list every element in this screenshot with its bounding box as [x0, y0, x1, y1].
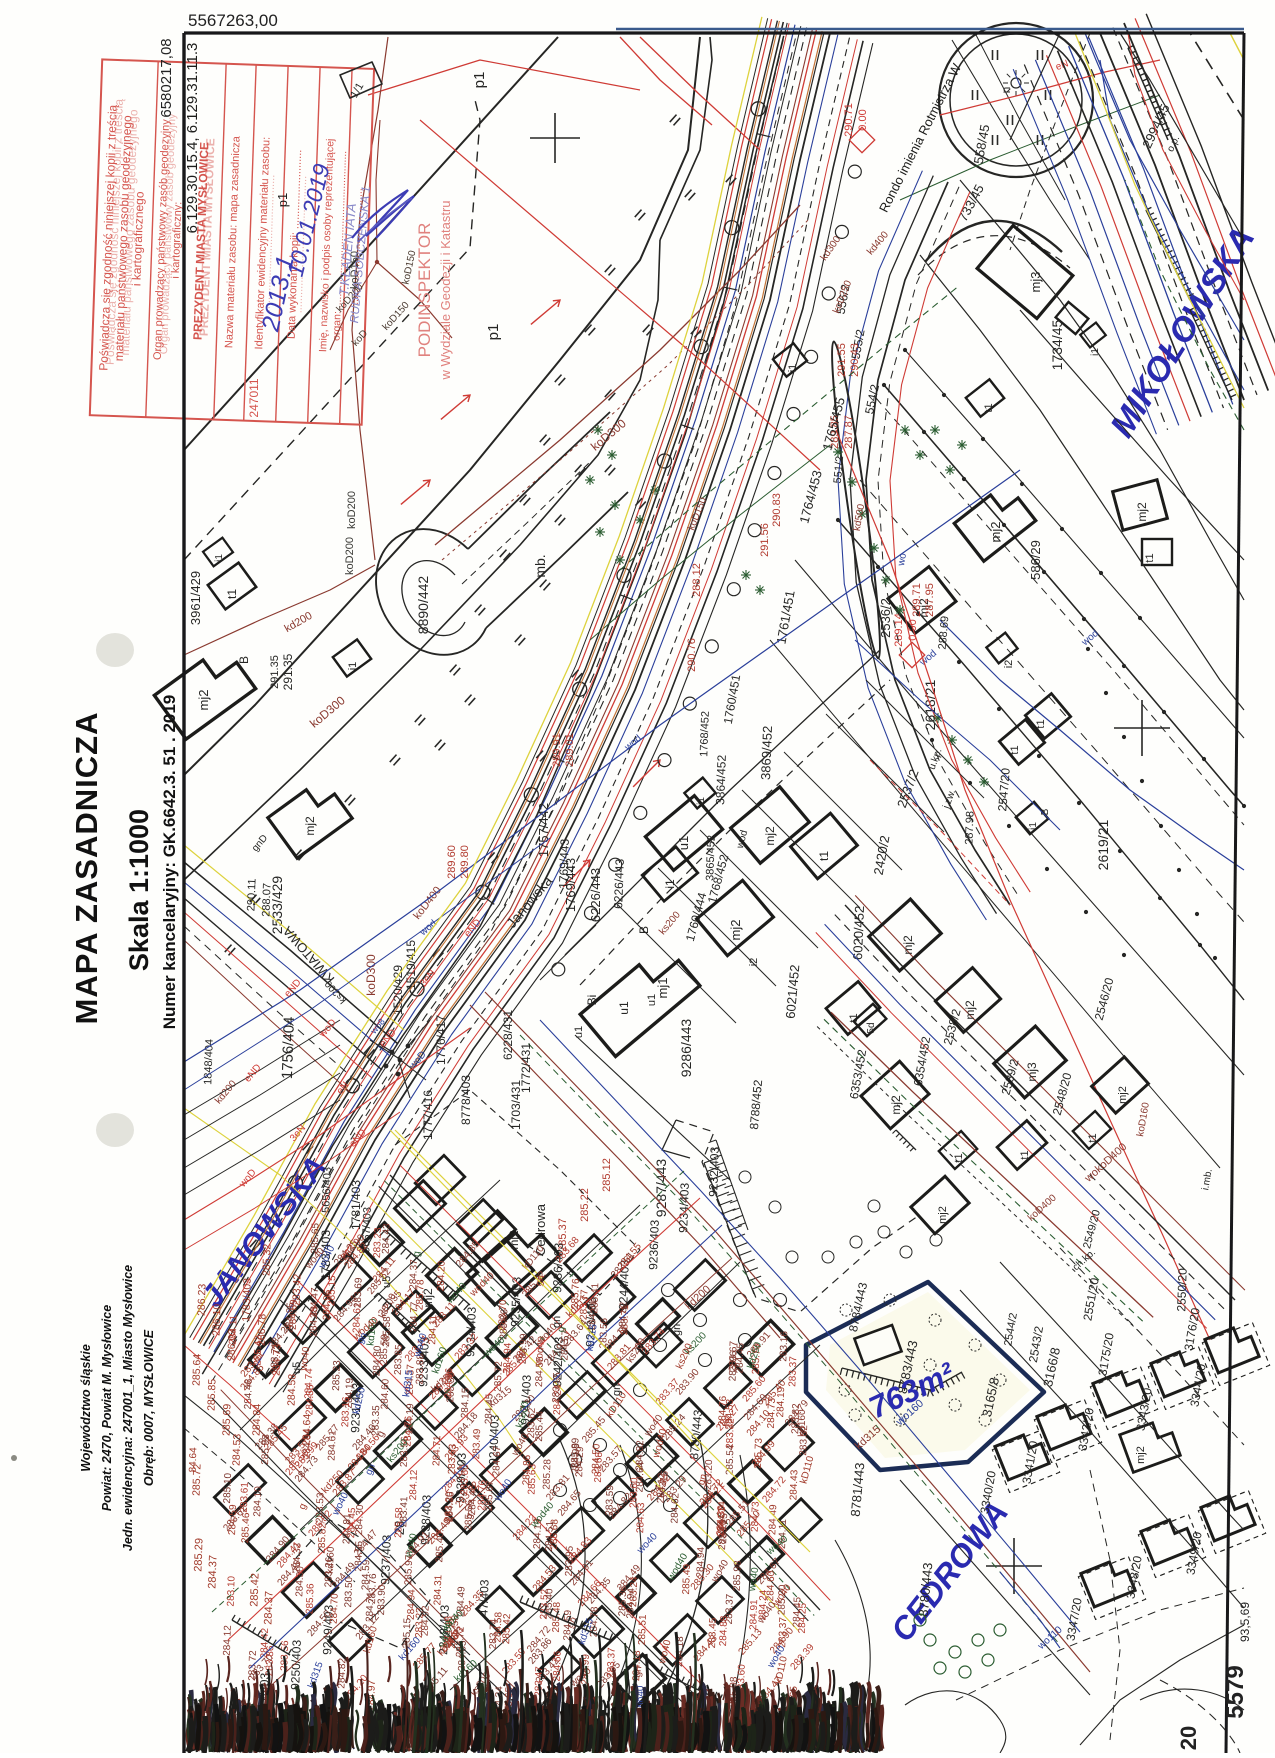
svg-text:284.43: 284.43 — [381, 1223, 393, 1254]
svg-text:i1: i1 — [696, 797, 707, 805]
svg-text:0.00: 0.00 — [857, 109, 869, 130]
svg-text:284.43: 284.43 — [308, 1305, 320, 1336]
svg-text:283.74: 283.74 — [488, 1618, 500, 1649]
svg-text:284.43: 284.43 — [788, 1469, 800, 1500]
svg-text:t1: t1 — [953, 1153, 965, 1162]
svg-text:284.77: 284.77 — [408, 1301, 420, 1332]
svg-text:u5: u5 — [381, 1276, 393, 1289]
svg-text:283.60: 283.60 — [628, 1477, 640, 1508]
svg-text:Numer kancelaryjny: GK.6642.3.: Numer kancelaryjny: GK.6642.3. 51 . 2019 — [160, 695, 179, 1030]
svg-text:1783/403: 1783/403 — [240, 1278, 254, 1322]
svg-text:284.10: 284.10 — [252, 1486, 264, 1517]
svg-text:mj2: mj2 — [1117, 1086, 1129, 1104]
svg-text:285.29: 285.29 — [192, 1538, 205, 1572]
svg-text:285.72: 285.72 — [190, 1463, 203, 1496]
svg-text:9287/443: 9287/443 — [653, 1159, 669, 1218]
svg-text:i1: i1 — [1028, 822, 1039, 830]
svg-text:289.91: 289.91 — [551, 733, 563, 767]
svg-text:mj2: mj2 — [507, 1230, 521, 1250]
svg-text:mj2: mj2 — [988, 522, 1003, 543]
svg-text:mj2: mj2 — [901, 935, 915, 955]
svg-text:284.12: 284.12 — [222, 1625, 234, 1656]
svg-text:1757/442: 1757/442 — [536, 803, 551, 857]
svg-text:284.53: 284.53 — [230, 1433, 243, 1466]
svg-text:287.87: 287.87 — [843, 415, 855, 449]
svg-text:284.70: 284.70 — [329, 1593, 341, 1624]
svg-text:1848/404: 1848/404 — [202, 1039, 216, 1085]
svg-text:285.10: 285.10 — [222, 1472, 234, 1503]
svg-text:t1: t1 — [1087, 1133, 1099, 1142]
svg-text:9286/443: 9286/443 — [678, 1019, 694, 1078]
svg-text:284.12: 284.12 — [408, 1469, 420, 1500]
svg-text:PODINSPEKTOR: PODINSPEKTOR — [415, 223, 434, 358]
svg-text:MAPA ZASADNICZA: MAPA ZASADNICZA — [69, 712, 104, 1025]
svg-text:koD200: koD200 — [344, 537, 356, 575]
svg-text:8890/442: 8890/442 — [415, 576, 431, 635]
svg-text:247011: 247011 — [247, 378, 261, 417]
svg-text:283.25: 283.25 — [718, 1513, 730, 1544]
svg-text:285.64: 285.64 — [190, 1353, 203, 1386]
svg-text:285.15: 285.15 — [326, 1275, 338, 1306]
svg-text:284.25: 284.25 — [797, 1602, 809, 1633]
svg-text:284.37: 284.37 — [408, 1259, 420, 1290]
svg-text:t1: t1 — [1019, 1150, 1031, 1159]
svg-text:284.73: 284.73 — [270, 1343, 283, 1376]
svg-text:283.10: 283.10 — [226, 1575, 238, 1606]
svg-text:285.23: 285.23 — [331, 1360, 343, 1391]
svg-text:290.71: 290.71 — [843, 103, 855, 137]
svg-text:1776/417: 1776/417 — [434, 1015, 448, 1065]
svg-text:283.42: 283.42 — [290, 1273, 303, 1306]
svg-text:t1: t1 — [817, 851, 831, 861]
svg-text:mj2: mj2 — [963, 1000, 977, 1020]
svg-text:285.22: 285.22 — [579, 1188, 591, 1222]
svg-text:koD300: koD300 — [364, 954, 378, 996]
svg-text:290.76: 290.76 — [686, 638, 698, 672]
svg-text:285.32: 285.32 — [260, 1243, 273, 1276]
svg-text:285.28: 285.28 — [541, 1459, 553, 1490]
svg-text:291.35: 291.35 — [281, 653, 295, 690]
svg-text:284.37: 284.37 — [262, 1591, 275, 1625]
svg-text:t1: t1 — [1009, 745, 1021, 754]
svg-text:1769/443: 1769/443 — [563, 858, 578, 912]
svg-text:283.95: 283.95 — [564, 1545, 576, 1576]
svg-text:5d: 5d — [866, 1022, 877, 1033]
svg-text:285.12: 285.12 — [601, 1158, 613, 1192]
svg-text:Skala 1:1000: Skala 1:1000 — [124, 809, 154, 971]
svg-text:3961/429: 3961/429 — [188, 571, 203, 625]
svg-text:284.86: 284.86 — [521, 1454, 533, 1485]
svg-text:284.84: 284.84 — [250, 1403, 263, 1436]
svg-text:6226/443: 6226/443 — [588, 868, 603, 922]
svg-text:285.59: 285.59 — [379, 1334, 391, 1365]
svg-text:286.23: 286.23 — [195, 1283, 208, 1316]
svg-text:284.94: 284.94 — [625, 1588, 637, 1619]
svg-text:284.31: 284.31 — [432, 1574, 444, 1605]
svg-text:u1: u1 — [573, 1026, 585, 1038]
svg-text:mj2: mj2 — [1135, 1446, 1147, 1464]
svg-text:Powiat: 2470, Powiat M. Mysłow: Powiat: 2470, Powiat M. Mysłowice — [100, 1305, 114, 1511]
svg-text:5579: 5579 — [1222, 1665, 1249, 1718]
svg-text:kd160: kd160 — [797, 1409, 808, 1437]
svg-text:6.129.30.15.4, 6.129.31.11.3: 6.129.30.15.4, 6.129.31.11.3 — [184, 43, 201, 234]
svg-text:6228/431: 6228/431 — [501, 1010, 515, 1060]
svg-text:285.51: 285.51 — [637, 1614, 649, 1645]
svg-text:mj2: mj2 — [889, 1095, 903, 1115]
svg-text:t1: t1 — [1144, 553, 1156, 562]
svg-text:p1: p1 — [485, 324, 502, 341]
svg-text:gn: gn — [551, 1316, 563, 1329]
svg-text:290.83: 290.83 — [771, 493, 783, 527]
svg-text:p1: p1 — [275, 193, 290, 207]
svg-text:B: B — [237, 656, 251, 664]
svg-text:285.36: 285.36 — [305, 1583, 317, 1614]
svg-text:6226/443: 6226/443 — [611, 858, 627, 909]
svg-text:286.78: 286.78 — [255, 1313, 268, 1346]
svg-text:B: B — [637, 926, 651, 934]
svg-text:284.64: 284.64 — [300, 1413, 313, 1446]
svg-text:t1: t1 — [1035, 719, 1047, 728]
svg-text:gn: gn — [611, 1384, 623, 1397]
svg-text:586/29: 586/29 — [1028, 540, 1043, 580]
svg-text:551/2: 551/2 — [832, 456, 846, 484]
svg-text:291.56: 291.56 — [759, 523, 771, 557]
svg-text:i1: i1 — [787, 364, 799, 373]
svg-text:mj2: mj2 — [196, 690, 211, 711]
svg-text:285.98: 285.98 — [732, 1560, 744, 1591]
svg-text:mj2: mj2 — [728, 920, 743, 941]
svg-text:Obręb: 0007, MYSŁOWICE: Obręb: 0007, MYSŁOWICE — [142, 1329, 156, 1486]
svg-text:mj3: mj3 — [1025, 1062, 1039, 1082]
svg-text:284.30: 284.30 — [294, 1566, 306, 1597]
svg-text:288.07: 288.07 — [260, 883, 273, 917]
svg-text:290.43: 290.43 — [849, 343, 861, 377]
svg-text:u1: u1 — [617, 1001, 631, 1015]
svg-text:1703/431: 1703/431 — [509, 1080, 523, 1130]
svg-text:284.58: 284.58 — [285, 1373, 298, 1406]
svg-text:u5: u5 — [291, 1362, 303, 1375]
svg-text:289.71: 289.71 — [911, 583, 923, 617]
svg-text:t1: t1 — [983, 403, 995, 412]
svg-text:t1: t1 — [225, 589, 239, 599]
svg-text:1777/416: 1777/416 — [421, 1090, 435, 1140]
svg-text:9237/403: 9237/403 — [378, 1534, 394, 1585]
svg-text:w Wydziale Geodezji i Katastru: w Wydziale Geodezji i Katastru — [438, 200, 453, 380]
svg-text:5567263,00: 5567263,00 — [188, 11, 278, 30]
svg-text:2550/20: 2550/20 — [1174, 1268, 1190, 1312]
svg-text:93,5,69: 93,5,69 — [1238, 1602, 1252, 1642]
svg-text:283.69: 283.69 — [353, 1277, 365, 1308]
svg-text:284.53: 284.53 — [724, 1398, 736, 1429]
svg-text:284.20: 284.20 — [436, 1260, 448, 1291]
svg-text:20: 20 — [1176, 1726, 1201, 1750]
svg-text:291.35: 291.35 — [269, 655, 281, 689]
svg-text:283.37: 283.37 — [787, 1356, 799, 1387]
svg-text:284.37: 284.37 — [206, 1555, 219, 1589]
svg-text:287.95: 287.95 — [924, 583, 936, 617]
svg-text:286.03: 286.03 — [225, 1328, 238, 1361]
svg-text:284.60: 284.60 — [379, 1378, 391, 1409]
svg-text:mj2: mj2 — [763, 826, 777, 846]
svg-text:Województwo śląskie: Województwo śląskie — [79, 1344, 93, 1472]
svg-text:2619/21: 2619/21 — [1095, 819, 1111, 870]
svg-text:289.60: 289.60 — [446, 845, 458, 879]
svg-text:290.11: 290.11 — [245, 878, 258, 911]
svg-text:285.73: 285.73 — [753, 1438, 765, 1469]
svg-text:1734/45: 1734/45 — [1049, 319, 1065, 370]
svg-text:5656/403: 5656/403 — [320, 1167, 334, 1213]
svg-text:291.55: 291.55 — [836, 343, 848, 377]
svg-text:mj2: mj2 — [303, 816, 317, 836]
svg-text:p1: p1 — [471, 72, 488, 89]
svg-text:mj2: mj2 — [937, 1206, 949, 1224]
svg-text:3864/452: 3864/452 — [713, 754, 729, 805]
svg-text:283.96: 283.96 — [728, 1350, 740, 1381]
svg-text:mb.: mb. — [532, 554, 548, 577]
svg-text:gn: gn — [671, 1324, 683, 1337]
svg-text:mj3: mj3 — [1028, 272, 1043, 293]
svg-text:288.12: 288.12 — [691, 563, 703, 597]
svg-text:8778/403: 8778/403 — [459, 1075, 473, 1125]
svg-text:3869/452: 3869/452 — [758, 725, 775, 780]
svg-text:284.88: 284.88 — [718, 1615, 730, 1646]
svg-text:9232/403: 9232/403 — [706, 1146, 722, 1197]
svg-text:283.37: 283.37 — [606, 1647, 618, 1678]
svg-text:i2: i2 — [748, 958, 760, 967]
svg-text:283.49: 283.49 — [471, 1428, 483, 1459]
svg-text:285.42: 285.42 — [248, 1573, 261, 1607]
svg-text:Jedn. ewidencyjna: 247001_1, M: Jedn. ewidencyjna: 247001_1, Miasto Mysł… — [121, 1265, 135, 1551]
svg-text:286.10: 286.10 — [210, 1303, 223, 1336]
svg-text:285.85: 285.85 — [205, 1378, 218, 1411]
svg-text:284.74: 284.74 — [303, 1368, 315, 1399]
svg-text:284.51: 284.51 — [544, 1520, 556, 1551]
svg-text:285.69: 285.69 — [220, 1403, 233, 1436]
svg-text:i1: i1 — [214, 554, 225, 562]
svg-text:Bi: Bi — [585, 995, 599, 1006]
svg-text:6580217,08: 6580217,08 — [158, 38, 175, 117]
svg-text:i2: i2 — [1003, 660, 1015, 669]
svg-text:i1: i1 — [347, 662, 359, 671]
svg-text:283.95: 283.95 — [551, 1372, 563, 1403]
svg-text:284.29: 284.29 — [574, 1446, 586, 1477]
svg-text:1768/452: 1768/452 — [698, 711, 712, 757]
svg-text:283.85: 283.85 — [393, 1344, 405, 1375]
svg-text:u1: u1 — [646, 994, 658, 1006]
svg-text:koD200: koD200 — [346, 491, 358, 529]
svg-text:289.01: 289.01 — [564, 733, 576, 767]
svg-text:mj2: mj2 — [1135, 502, 1149, 522]
svg-text:285.54: 285.54 — [724, 1444, 736, 1475]
svg-text:kd160: kd160 — [325, 1546, 337, 1574]
